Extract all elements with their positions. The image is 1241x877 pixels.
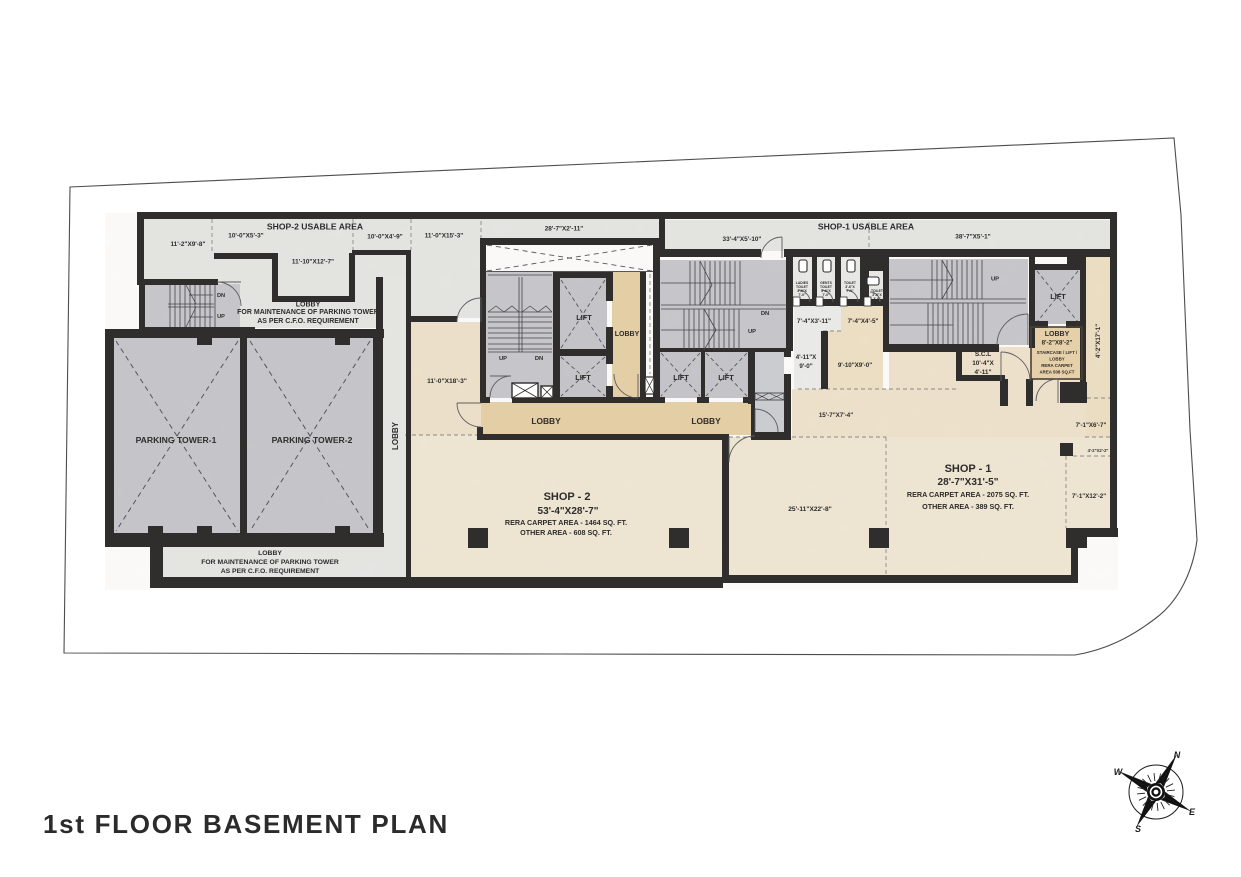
- svg-text:PARKING TOWER-1: PARKING TOWER-1: [136, 435, 217, 445]
- svg-text:LIFT: LIFT: [718, 373, 734, 382]
- svg-text:LOBBY: LOBBY: [1045, 331, 1070, 338]
- svg-text:28'-7"X31'-5": 28'-7"X31'-5": [938, 477, 999, 488]
- svg-text:4'-11"X: 4'-11"X: [796, 354, 817, 361]
- svg-text:SHOP - 1: SHOP - 1: [945, 463, 992, 475]
- svg-text:DN: DN: [217, 293, 225, 299]
- svg-text:7'-4"X3'-11": 7'-4"X3'-11": [797, 318, 831, 325]
- svg-text:UP: UP: [748, 329, 756, 335]
- svg-text:4'-11": 4'-11": [975, 369, 992, 376]
- svg-text:STAIRCASE / LIFT /: STAIRCASE / LIFT /: [1037, 350, 1078, 355]
- svg-text:S: S: [1135, 824, 1141, 834]
- svg-text:DN: DN: [535, 356, 543, 362]
- svg-text:10'-0"X5'-3": 10'-0"X5'-3": [228, 233, 263, 240]
- svg-text:11'-0"X15'-3": 11'-0"X15'-3": [425, 233, 464, 240]
- svg-text:E: E: [1189, 807, 1196, 817]
- svg-text:11'-10"X12'-7": 11'-10"X12'-7": [292, 259, 334, 266]
- svg-text:N: N: [1174, 750, 1181, 760]
- svg-text:LOBBY: LOBBY: [531, 416, 561, 426]
- svg-text:28'-7"X2'-11": 28'-7"X2'-11": [545, 226, 584, 233]
- svg-text:7'-0": 7'-0": [846, 289, 854, 293]
- svg-text:AREA 508 SQ.FT: AREA 508 SQ.FT: [1040, 370, 1075, 375]
- svg-text:53'-4"X28'-7": 53'-4"X28'-7": [538, 506, 599, 517]
- svg-text:LOBBY: LOBBY: [391, 421, 400, 450]
- svg-text:RERA CARPET: RERA CARPET: [1041, 363, 1073, 368]
- svg-text:7'-1"X6'-7": 7'-1"X6'-7": [1076, 422, 1107, 429]
- svg-text:FOR MAINTENANCE OF PARKING TOW: FOR MAINTENANCE OF PARKING TOWER: [237, 309, 379, 316]
- svg-text:8'-2"X8'-2": 8'-2"X8'-2": [1042, 340, 1073, 347]
- svg-text:4'-2"X17'-1": 4'-2"X17'-1": [1095, 324, 1102, 358]
- svg-text:UP: UP: [991, 277, 999, 283]
- svg-text:7'-4"X4'-5": 7'-4"X4'-5": [848, 318, 879, 325]
- svg-text:10'-0"X4'-9": 10'-0"X4'-9": [367, 234, 402, 241]
- svg-text:4'-6": 4'-6": [873, 297, 881, 301]
- svg-text:15'-7"X7'-4": 15'-7"X7'-4": [819, 412, 853, 419]
- svg-text:OTHER AREA - 389 SQ. FT.: OTHER AREA - 389 SQ. FT.: [922, 502, 1014, 511]
- svg-text:AS PER C.F.O. REQUIREMENT: AS PER C.F.O. REQUIREMENT: [221, 568, 320, 575]
- svg-text:SHOP - 2: SHOP - 2: [544, 491, 591, 503]
- svg-text:LIFT: LIFT: [1050, 292, 1066, 301]
- svg-text:7'-0": 7'-0": [822, 293, 830, 297]
- svg-text:1st FLOOR BASEMENT PLAN: 1st FLOOR BASEMENT PLAN: [43, 809, 449, 839]
- svg-text:33'-4"X5'-10": 33'-4"X5'-10": [723, 236, 762, 243]
- svg-text:7'-0": 7'-0": [798, 293, 806, 297]
- svg-text:OTHER AREA - 608 SQ. FT.: OTHER AREA - 608 SQ. FT.: [520, 528, 612, 537]
- svg-text:10'-4"X: 10'-4"X: [972, 360, 994, 367]
- svg-text:UP: UP: [217, 314, 225, 320]
- svg-text:9'-10"X9'-0": 9'-10"X9'-0": [838, 362, 872, 369]
- svg-text:RERA CARPET AREA - 2075 SQ. FT: RERA CARPET AREA - 2075 SQ. FT.: [907, 490, 1029, 499]
- svg-text:11'-2"X9'-8": 11'-2"X9'-8": [170, 241, 205, 248]
- svg-text:UP: UP: [499, 356, 507, 362]
- svg-text:RERA CARPET AREA - 1464 SQ. FT: RERA CARPET AREA - 1464 SQ. FT.: [505, 518, 627, 527]
- svg-text:LOBBY: LOBBY: [691, 416, 721, 426]
- svg-text:LOBBY: LOBBY: [296, 302, 321, 309]
- svg-text:9'-0": 9'-0": [799, 363, 812, 370]
- svg-text:25'-11"X22'-8": 25'-11"X22'-8": [788, 506, 831, 513]
- svg-text:SHOP-1 USABLE AREA: SHOP-1 USABLE AREA: [818, 222, 914, 232]
- svg-text:4'-2"X2'-2": 4'-2"X2'-2": [1088, 448, 1109, 453]
- svg-text:DN: DN: [761, 311, 769, 317]
- svg-text:LIFT: LIFT: [575, 373, 591, 382]
- svg-text:11'-0"X18'-3": 11'-0"X18'-3": [427, 378, 467, 385]
- svg-text:LOBBY: LOBBY: [615, 331, 640, 338]
- svg-text:AS PER C.F.O. REQUIREMENT: AS PER C.F.O. REQUIREMENT: [257, 318, 359, 325]
- svg-text:LOBBY: LOBBY: [258, 550, 282, 557]
- svg-text:38'-7"X5'-1": 38'-7"X5'-1": [955, 234, 990, 241]
- svg-text:W: W: [1114, 767, 1124, 777]
- svg-text:7'-1"X12'-2": 7'-1"X12'-2": [1072, 493, 1106, 500]
- svg-text:PARKING TOWER-2: PARKING TOWER-2: [272, 435, 353, 445]
- svg-text:SHOP-2 USABLE AREA: SHOP-2 USABLE AREA: [267, 222, 363, 232]
- svg-text:FOR MAINTENANCE OF PARKING TOW: FOR MAINTENANCE OF PARKING TOWER: [201, 559, 339, 566]
- svg-text:S.C.L: S.C.L: [975, 351, 991, 358]
- svg-text:LIFT: LIFT: [576, 313, 592, 322]
- svg-text:LIFT: LIFT: [673, 373, 689, 382]
- svg-text:LOBBY: LOBBY: [1049, 357, 1064, 362]
